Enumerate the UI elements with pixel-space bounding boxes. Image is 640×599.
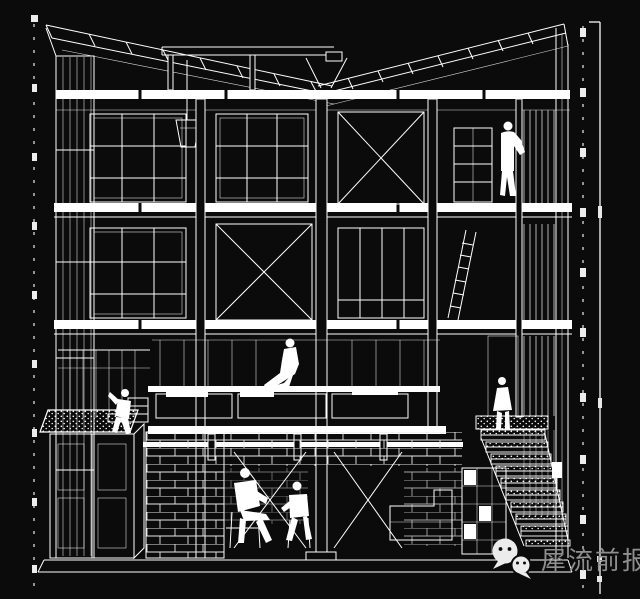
window-grid (90, 114, 186, 202)
figure-sitting-platform (264, 339, 299, 393)
roof-battens-left (89, 34, 317, 93)
scale-bar (589, 22, 602, 594)
floor-slabs (54, 90, 572, 334)
ladder (448, 230, 476, 320)
roof-structure (46, 24, 568, 147)
masonry-wall (224, 432, 462, 466)
window-grid (90, 228, 186, 318)
wechat-icon (492, 538, 534, 582)
cross-brace (216, 224, 312, 320)
watermark-text: 犀流前报 (541, 548, 640, 573)
cross-brace (338, 112, 424, 204)
watermark: 犀流前报 (492, 538, 640, 582)
middle-floor (90, 224, 476, 320)
masonry-wall (146, 432, 224, 558)
window-grid (216, 114, 308, 202)
architectural-drawing-canvas: 犀流前报 (0, 0, 640, 599)
reference-line-right (580, 26, 586, 592)
section-drawing (0, 0, 640, 599)
shelving-unit (454, 128, 492, 202)
tall-glazing (338, 228, 424, 318)
left-railing (58, 350, 150, 418)
left-stud-wall (46, 28, 94, 558)
masonry-wall (404, 468, 462, 546)
reference-line-left (31, 15, 38, 592)
wall-opening (552, 462, 562, 478)
